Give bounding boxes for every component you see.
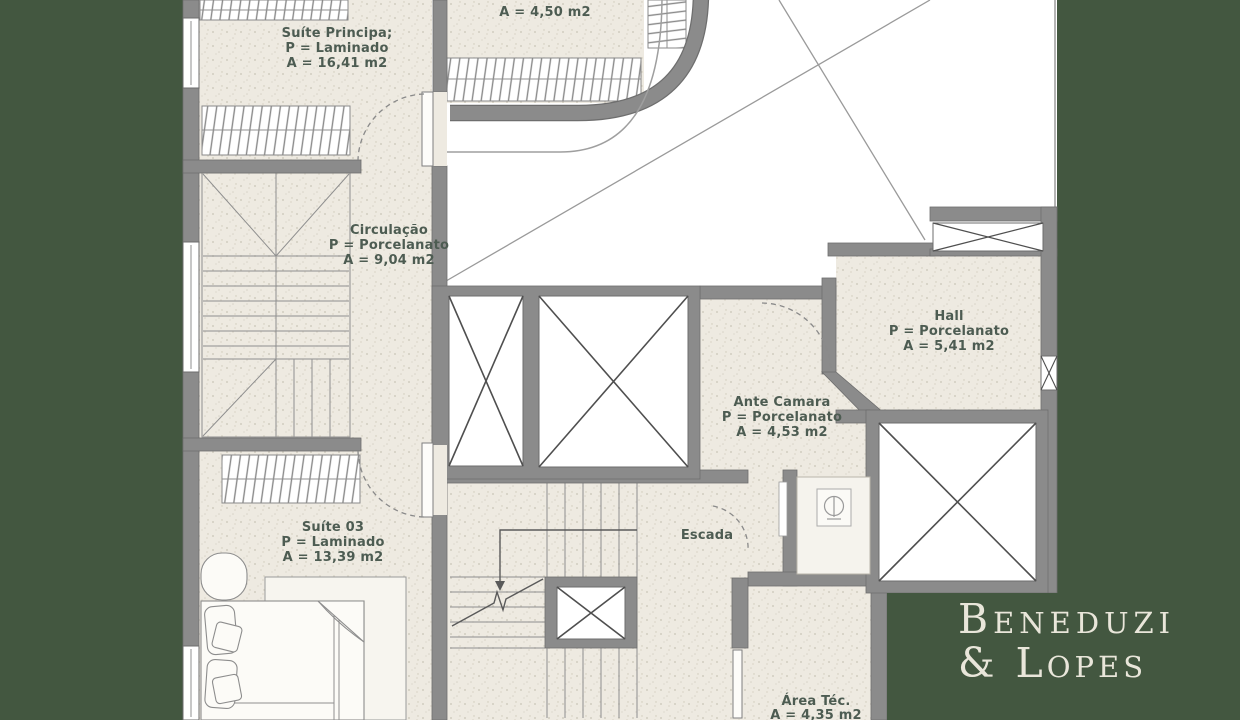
svg-text:P = Laminado: P = Laminado <box>281 535 384 550</box>
svg-text:A = 5,41 m2: A = 5,41 m2 <box>903 339 994 354</box>
window <box>183 242 199 372</box>
screenshot-root: A = 4,50 m2 Suíte Principa; P = Laminado… <box>0 0 1240 720</box>
svg-text:P = Porcelanato: P = Porcelanato <box>722 410 842 425</box>
armchair <box>201 553 247 600</box>
suite03-furniture <box>201 553 406 720</box>
wardrobe-hatch <box>648 0 686 48</box>
svg-text:P = Porcelanato: P = Porcelanato <box>889 324 1009 339</box>
svg-text:Circulação: Circulação <box>350 223 428 238</box>
wardrobe-hatch <box>200 0 348 20</box>
wardrobe-hatch <box>222 455 360 503</box>
brand-name-line1: Beneduzi <box>958 595 1175 643</box>
svg-text:Hall: Hall <box>934 309 963 324</box>
cushion <box>212 674 242 704</box>
brand-name-line2: & Lopes <box>958 639 1147 687</box>
svg-text:A = 9,04 m2: A = 9,04 m2 <box>343 253 434 268</box>
room-label-escada: Escada <box>681 528 733 543</box>
svg-text:A = 13,39 m2: A = 13,39 m2 <box>283 550 384 565</box>
window <box>183 18 199 88</box>
room-label-closet: A = 4,50 m2 <box>499 5 590 20</box>
svg-text:Ante Camara: Ante Camara <box>734 395 831 410</box>
window <box>183 646 199 720</box>
room-label-area-tecnica: Área Téc. A = 4,35 m2 <box>770 693 861 720</box>
door-leaf <box>422 92 433 166</box>
equipment-symbol <box>817 489 851 526</box>
elevator-shafts <box>432 286 700 479</box>
wardrobe-hatch <box>202 106 350 155</box>
window-bowtie <box>1041 356 1057 390</box>
window-bowtie <box>933 223 1043 251</box>
svg-text:A = 4,35 m2: A = 4,35 m2 <box>770 708 861 720</box>
svg-text:P = Laminado: P = Laminado <box>285 41 388 56</box>
door-leaf <box>422 443 433 517</box>
svg-text:Suíte 03: Suíte 03 <box>302 520 364 535</box>
room-label-ante-camara: Ante Camara P = Porcelanato A = 4,53 m2 <box>722 395 842 440</box>
svg-text:A = 4,53 m2: A = 4,53 m2 <box>736 425 827 440</box>
wardrobe-hatch <box>447 58 641 101</box>
room-label-suite-principal: Suíte Principa; P = Laminado A = 16,41 m… <box>282 26 393 71</box>
svg-text:Área Téc.: Área Téc. <box>782 693 851 709</box>
svg-text:Suíte Principa;: Suíte Principa; <box>282 26 393 41</box>
brand-logo: Beneduzi & Lopes <box>958 595 1175 687</box>
floor-plan-canvas: A = 4,50 m2 Suíte Principa; P = Laminado… <box>0 0 1240 720</box>
cushion <box>211 621 243 653</box>
stair-core-shaft <box>545 577 637 648</box>
svg-text:A = 16,41 m2: A = 16,41 m2 <box>287 56 388 71</box>
svg-text:P = Porcelanato: P = Porcelanato <box>329 238 449 253</box>
shaft-room <box>866 410 1048 593</box>
door-leaf <box>733 650 742 718</box>
